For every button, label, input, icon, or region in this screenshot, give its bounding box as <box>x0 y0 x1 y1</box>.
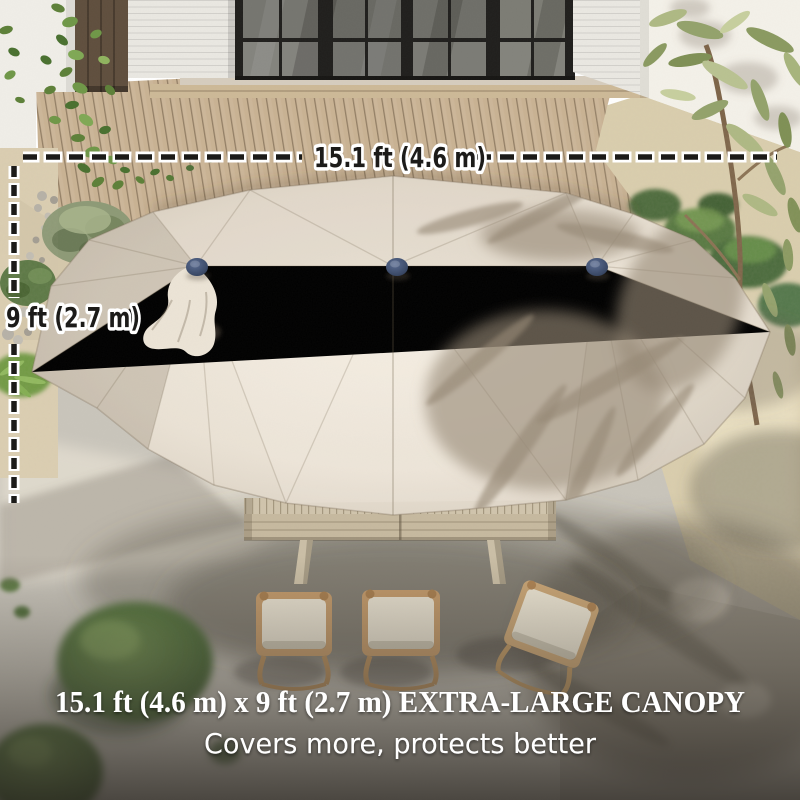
width-dimension-label: 15.1 ft (4.6 m) <box>314 141 486 174</box>
height-dimension-label: 9 ft (2.7 m) <box>6 301 140 334</box>
subheadline: Covers more, protects better <box>204 727 596 760</box>
product-image: 15.1 ft (4.6 m) 9 ft (2.7 m) 15.1 ft (4.… <box>0 0 800 800</box>
headline: 15.1 ft (4.6 m) x 9 ft (2.7 m) EXTRA-LAR… <box>55 684 745 719</box>
bottom-gradient-overlay <box>0 555 800 800</box>
